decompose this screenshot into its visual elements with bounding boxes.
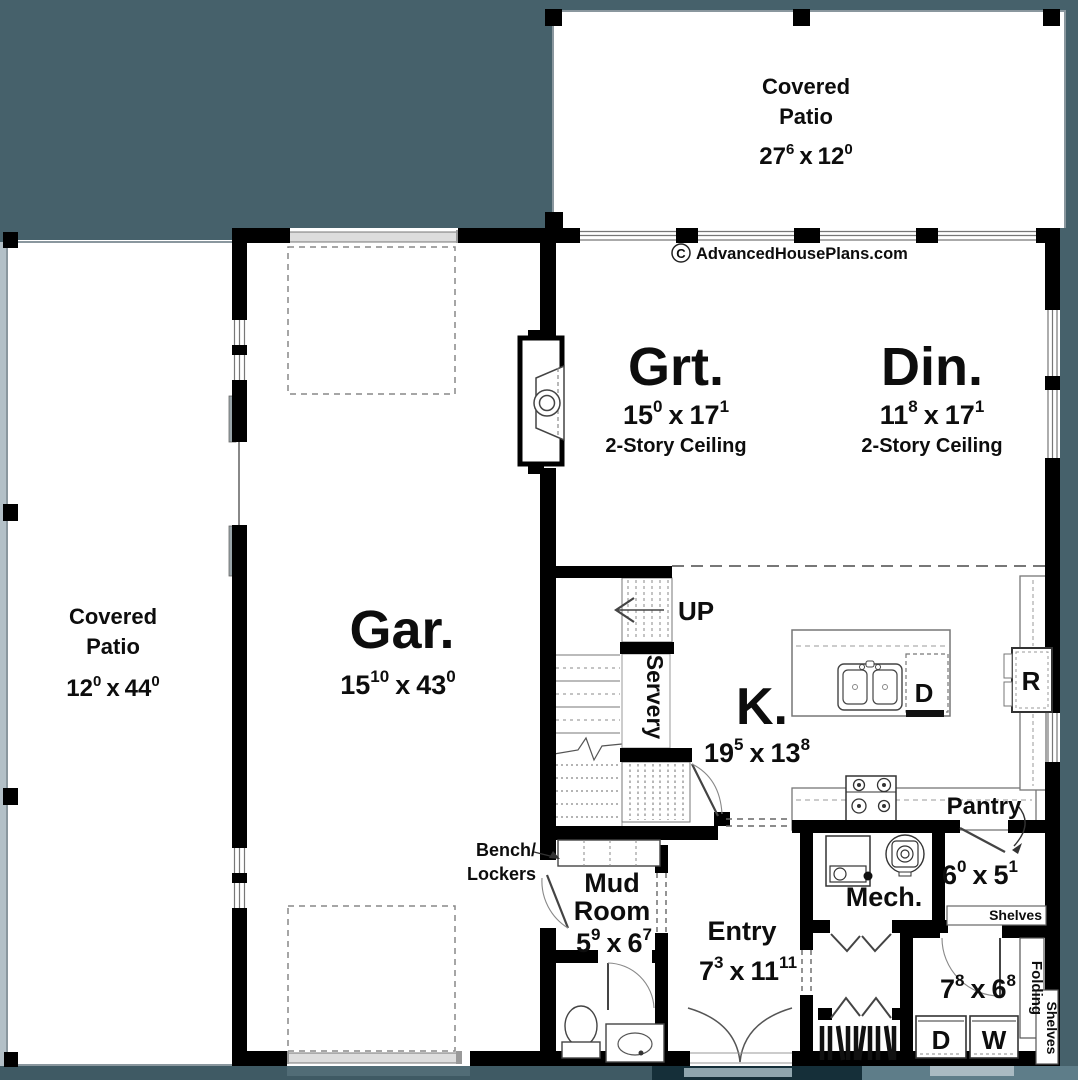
plan-shape: [0, 242, 6, 1066]
servery-label: Servery: [642, 655, 668, 740]
kitchen-label: K.: [736, 678, 788, 736]
plan-shape: 6: [942, 860, 957, 890]
plan-shape: x: [972, 860, 987, 890]
plan-shape: 7: [699, 956, 714, 986]
plan-shape: 0: [844, 141, 852, 158]
watermark: C AdvancedHousePlans.com: [672, 244, 908, 263]
plan-shape: 0: [446, 667, 455, 686]
plan-shape: 0: [93, 673, 101, 690]
plan-shape: x: [606, 928, 621, 958]
floor-drain: [864, 872, 873, 881]
plan-shape: [540, 468, 556, 568]
plan-shape: 15: [340, 670, 370, 700]
plan-shape: [794, 228, 820, 243]
patio-post: [1043, 9, 1060, 26]
great-room-note: 2-Story Ceiling: [605, 435, 746, 457]
plan-shape: [882, 783, 886, 787]
patio-post: [3, 504, 18, 521]
plan-shape: [818, 1008, 832, 1020]
plan-shape: 5: [734, 735, 743, 754]
toilet: [562, 1006, 600, 1058]
plan-shape: [1002, 925, 1060, 938]
dishwasher-label: D: [915, 678, 934, 708]
plan-shape: [813, 920, 830, 933]
watermark-text: AdvancedHousePlans.com: [696, 245, 908, 263]
plan-shape: 11: [880, 400, 909, 430]
kitchen-sink: [838, 661, 902, 710]
plan-shape: [540, 228, 556, 338]
floor-plan-page: C AdvancedHousePlans.com Covered Patio 2…: [0, 0, 1078, 1080]
mud-room-dim: 59x67: [576, 925, 652, 958]
plan-shape: 8: [801, 735, 810, 754]
plan-shape: 11: [779, 953, 797, 972]
plan-shape: 0: [151, 673, 159, 690]
fireplace: [520, 330, 564, 474]
plan-shape: [684, 1068, 792, 1077]
pantry-dim: 60x51: [942, 857, 1018, 890]
plan-shape: [287, 1066, 470, 1076]
plan-shape: x: [924, 400, 939, 430]
plan-shape: [866, 661, 874, 667]
plan-shape: [1004, 682, 1012, 706]
plan-shape: [622, 762, 690, 822]
plan-shape: 7: [940, 974, 955, 1004]
plan-shape: 1: [720, 397, 729, 416]
plan-shape: [639, 1051, 644, 1056]
plan-shape: x: [799, 143, 813, 170]
plan-shape: [800, 995, 813, 1051]
mech-label: Mech.: [846, 882, 923, 912]
patio-left-label-2: Patio: [86, 634, 140, 659]
plan-shape: x: [668, 400, 683, 430]
mud-room-label-1: Mud: [584, 868, 639, 898]
patio-post: [545, 212, 563, 230]
plan-shape: 3: [714, 953, 723, 972]
plan-shape: 27: [759, 143, 786, 170]
plan-shape: 6: [786, 141, 794, 158]
stairs-up-label: UP: [678, 596, 714, 626]
plan-shape: 5: [994, 860, 1009, 890]
plan-shape: [843, 670, 867, 704]
patio-post: [793, 9, 810, 26]
plan-shape: [906, 710, 944, 717]
plan-shape: [232, 1051, 287, 1066]
plan-shape: 8: [955, 971, 964, 990]
dining-dim: 118x171: [880, 397, 985, 430]
plan-shape: [540, 566, 672, 578]
plan-shape: [232, 345, 247, 355]
laundry-shelves-label: Shelves: [1044, 1002, 1060, 1055]
plan-shape: 43: [416, 670, 446, 700]
bench-label-1: Bench/: [476, 840, 536, 860]
great-room-dim: 150x171: [623, 397, 729, 430]
plan-shape: x: [729, 956, 744, 986]
plan-shape: [456, 1051, 462, 1064]
plan-shape: [620, 748, 692, 762]
plan-shape: 5: [576, 928, 591, 958]
plan-shape: 6: [992, 974, 1007, 1004]
plan-shape: 8: [1007, 971, 1016, 990]
laundry-dim: 78x68: [940, 971, 1016, 1004]
plan-shape: [620, 642, 674, 654]
patio-left-dim: 120x440: [66, 673, 159, 702]
plan-shape: 1: [975, 397, 984, 416]
patio-post: [3, 232, 18, 248]
plan-shape: [800, 833, 813, 950]
dryer-label: D: [932, 1025, 951, 1055]
plan-shape: [900, 933, 913, 1051]
washer-label: W: [982, 1025, 1007, 1055]
plan-shape: 9: [591, 925, 600, 944]
plan-shape: 17: [690, 400, 720, 430]
plan-shape: [1008, 820, 1046, 833]
patio-top-label-1: Covered: [762, 74, 850, 99]
plan-shape: [558, 228, 580, 243]
garage-door: [286, 232, 457, 242]
entry-label: Entry: [707, 916, 776, 946]
plan-shape: [540, 578, 556, 826]
dining-note: 2-Story Ceiling: [861, 435, 1002, 457]
plan-shape: [676, 228, 698, 243]
patio-top-dim: 276x120: [759, 141, 852, 170]
plan-shape: [540, 928, 556, 1051]
pantry-label: Pantry: [947, 793, 1022, 820]
kitchen-dim: 195x138: [704, 735, 810, 768]
plan-shape: [652, 950, 668, 963]
plan-shape: x: [395, 670, 410, 700]
plan-shape: [232, 380, 247, 442]
plan-shape: [834, 868, 846, 880]
plan-shape: 44: [125, 675, 152, 702]
garage-label: Gar.: [349, 600, 454, 660]
plan-shape: 19: [704, 738, 734, 768]
plan-shape: [1045, 228, 1060, 310]
watermark-c: C: [676, 246, 686, 261]
vanity-sink: [606, 1024, 664, 1062]
bench-label-2: Lockers: [467, 864, 536, 884]
plan-shape: [857, 783, 861, 787]
plan-shape: 7: [643, 925, 652, 944]
plan-shape: [1004, 654, 1012, 678]
great-room-label: Grt.: [628, 337, 724, 397]
plan-shape: [900, 925, 940, 938]
plan-shape: [792, 820, 960, 833]
plan-shape: 10: [370, 667, 389, 686]
furnace: [826, 836, 870, 886]
plan-shape: [1045, 376, 1060, 390]
plan-shape: 1: [1009, 857, 1018, 876]
floor-plan-drawing: C AdvancedHousePlans.com Covered Patio 2…: [0, 0, 1078, 1080]
plan-shape: [857, 804, 861, 808]
plan-shape: [528, 330, 544, 340]
patio-left-label-1: Covered: [69, 604, 157, 629]
plan-shape: 12: [818, 143, 845, 170]
folding-label: Folding: [1028, 961, 1045, 1015]
plan-shape: 6: [628, 928, 643, 958]
plan-shape: [556, 642, 622, 826]
dining-label: Din.: [881, 337, 983, 397]
bench-lockers: [558, 840, 660, 866]
plan-shape: [618, 1033, 652, 1055]
plan-shape: 11: [751, 956, 780, 986]
plan-shape: 8: [908, 397, 917, 416]
plan-shape: 13: [771, 738, 801, 768]
plan-shape: x: [970, 974, 985, 1004]
plan-shape: [232, 873, 247, 883]
plan-shape: 12: [66, 675, 93, 702]
plan-shape: [540, 396, 555, 411]
plan-shape: x: [106, 675, 120, 702]
mud-room-label-2: Room: [574, 896, 651, 926]
plan-shape: [562, 1042, 600, 1058]
patio-post: [4, 1052, 18, 1067]
plan-shape: [565, 1006, 597, 1046]
plan-shape: [916, 228, 938, 243]
plan-shape: 15: [623, 400, 653, 430]
plan-shape: x: [749, 738, 764, 768]
plan-shape: 17: [945, 400, 975, 430]
patio-top-label-2: Patio: [779, 104, 833, 129]
plan-shape: [882, 804, 886, 808]
plan-shape: [540, 826, 718, 840]
plan-shape: [232, 525, 247, 848]
plan-shape: 0: [957, 857, 966, 876]
patio-post: [3, 788, 18, 805]
plan-shape: [528, 462, 544, 474]
plan-shape: [899, 872, 911, 876]
plan-shape: [232, 908, 247, 1066]
garage-dim: 1510x430: [340, 667, 456, 700]
plan-shape: [901, 850, 909, 858]
patio-post: [545, 9, 562, 26]
pantry-shelves-label: Shelves: [989, 907, 1042, 923]
plan-shape: [232, 228, 247, 320]
garage-door: [286, 1053, 457, 1063]
fridge-label: R: [1022, 666, 1041, 696]
plan-shape: [873, 670, 897, 704]
plan-shape: 0: [653, 397, 662, 416]
